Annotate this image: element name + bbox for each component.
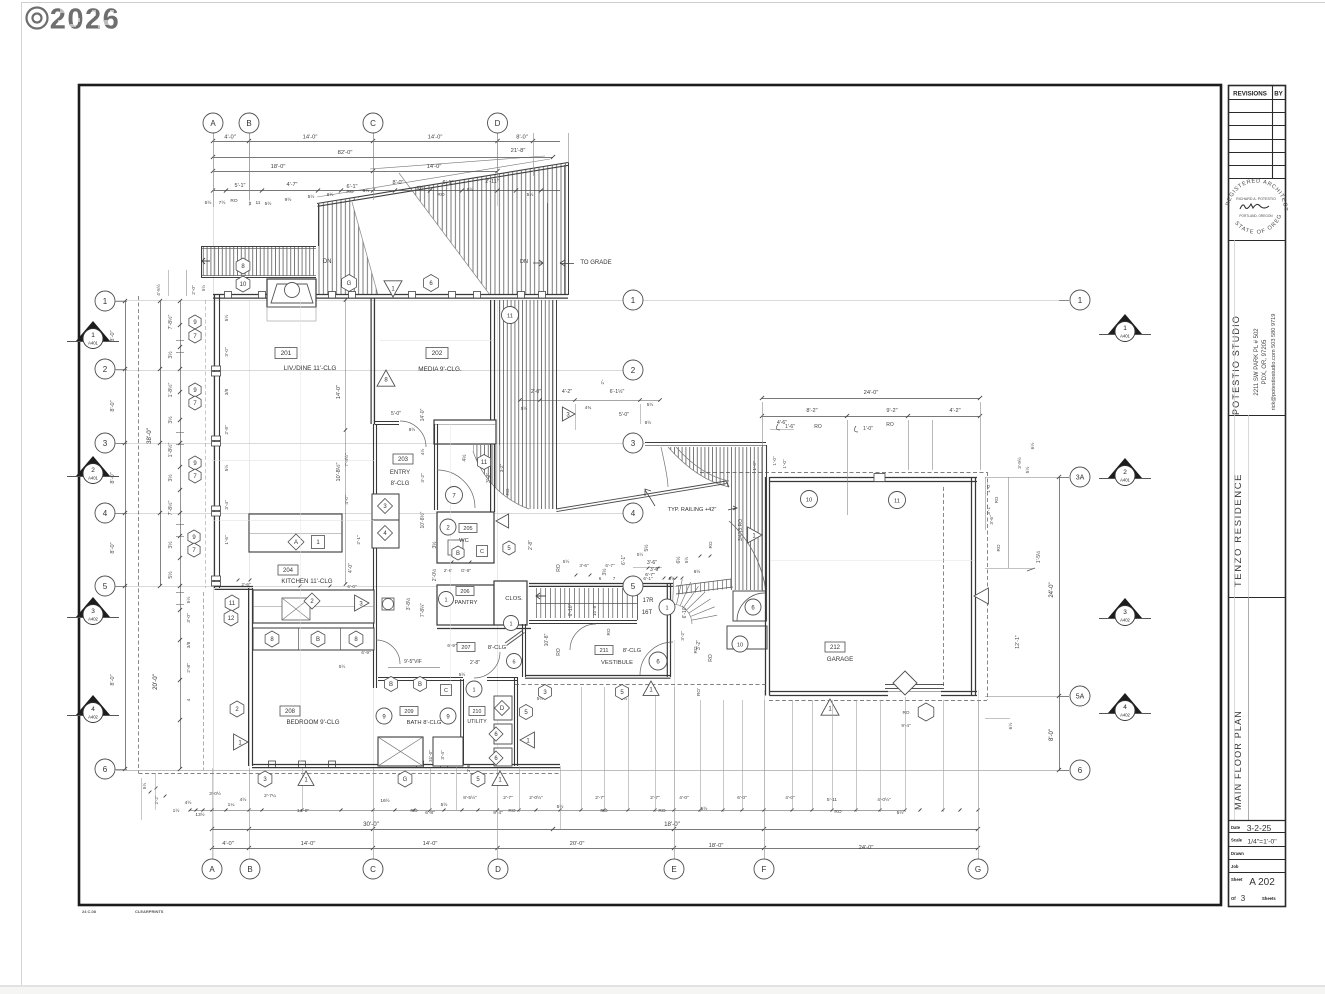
svg-text:3'-6": 3'-6" — [647, 560, 657, 566]
svg-text:7: 7 — [613, 576, 616, 581]
svg-text:2'-0½": 2'-0½" — [529, 794, 543, 801]
svg-text:RO: RO — [600, 808, 607, 814]
svg-text:3½: 3½ — [167, 351, 174, 359]
svg-text:1: 1 — [103, 297, 108, 306]
svg-text:5½: 5½ — [683, 557, 689, 564]
svg-text:12'-1": 12'-1" — [1015, 635, 1021, 649]
svg-text:A401: A401 — [88, 476, 98, 481]
svg-text:8'-CLG: 8'-CLG — [488, 645, 507, 651]
svg-text:2'-8": 2'-8" — [528, 540, 534, 550]
svg-text:RO: RO — [996, 544, 1001, 551]
svg-text:10: 10 — [737, 643, 743, 649]
svg-text:2: 2 — [91, 467, 95, 474]
svg-text:6½: 6½ — [1029, 443, 1036, 450]
svg-text:10'-8": 10'-8" — [592, 604, 597, 616]
svg-text:2: 2 — [103, 365, 108, 374]
svg-text:5: 5 — [631, 582, 636, 591]
svg-text:5½: 5½ — [141, 783, 147, 790]
svg-text:18'-0": 18'-0" — [271, 164, 286, 170]
svg-text:3-2": 3-2" — [499, 463, 504, 472]
svg-text:F: F — [762, 865, 767, 874]
svg-text:212: 212 — [830, 645, 841, 651]
svg-text:8'-5½": 8'-5½" — [463, 794, 477, 801]
svg-text:ENTRY: ENTRY — [390, 470, 410, 476]
svg-text:3: 3 — [1241, 894, 1246, 903]
svg-text:RO: RO — [505, 488, 510, 495]
svg-text:4'-0": 4'-0" — [679, 795, 689, 801]
svg-text:5½: 5½ — [459, 671, 466, 677]
svg-text:16T: 16T — [642, 610, 653, 616]
svg-text:1'-8½": 1'-8½" — [167, 383, 174, 398]
svg-text:3'-4": 3'-4" — [224, 500, 229, 510]
svg-text:2'-7": 2'-7" — [595, 795, 605, 801]
svg-text:RO: RO — [693, 646, 698, 653]
svg-text:5½: 5½ — [669, 575, 676, 581]
svg-text:6: 6 — [512, 660, 515, 666]
svg-text:4: 4 — [1123, 704, 1127, 711]
svg-text:5½: 5½ — [1024, 467, 1031, 474]
svg-text:201: 201 — [281, 350, 292, 357]
svg-text:204: 204 — [283, 568, 294, 574]
svg-text:RO: RO — [606, 628, 611, 635]
svg-text:7'-8½": 7'-8½" — [343, 453, 349, 467]
svg-text:203: 203 — [398, 457, 409, 463]
svg-text:Sheet: Sheet — [1231, 877, 1243, 882]
svg-text:10'-8½": 10'-8½" — [419, 511, 426, 528]
svg-text:DN: DN — [520, 259, 528, 265]
svg-text:rick@potestiostudio.com 503 58: rick@potestiostudio.com 503 580 9719 — [1271, 314, 1277, 411]
svg-text:18'-0": 18'-0" — [664, 821, 680, 828]
svg-text:8'-0": 8'-0" — [110, 472, 116, 483]
svg-text:CLEARPRINTS: CLEARPRINTS — [135, 909, 164, 914]
svg-text:208: 208 — [285, 709, 296, 715]
svg-text:3'-6": 3'-6" — [989, 515, 994, 525]
svg-text:2'-0½: 2'-0½ — [431, 568, 438, 581]
svg-text:3/8: 3/8 — [186, 641, 192, 648]
svg-text:4: 4 — [103, 509, 108, 518]
svg-text:2: 2 — [631, 366, 636, 375]
svg-text:14'-0": 14'-0" — [420, 408, 426, 421]
svg-text:B: B — [316, 637, 320, 643]
svg-text:3/8: 3/8 — [224, 388, 229, 395]
svg-text:TYP. RAILING +42": TYP. RAILING +42" — [668, 507, 717, 513]
svg-text:BATH 8'-CLG: BATH 8'-CLG — [407, 720, 442, 726]
svg-text:RO: RO — [658, 808, 665, 814]
svg-text:20'-0": 20'-0" — [570, 841, 585, 847]
svg-text:5½: 5½ — [897, 809, 904, 816]
svg-text:B: B — [389, 682, 393, 688]
svg-text:G: G — [975, 865, 981, 874]
svg-text:4¾: 4¾ — [585, 405, 592, 410]
svg-text:2'-0": 2'-0" — [531, 389, 541, 395]
svg-text:5: 5 — [103, 582, 108, 591]
svg-text:1: 1 — [665, 606, 668, 612]
svg-text:A402: A402 — [1120, 618, 1130, 623]
svg-text:9'-5"VIF: 9'-5"VIF — [404, 659, 422, 665]
svg-text:B: B — [456, 551, 460, 557]
svg-text:A: A — [210, 119, 216, 128]
svg-text:3-2-25: 3-2-25 — [1247, 823, 1272, 833]
svg-text:211: 211 — [600, 648, 609, 654]
svg-text:8'-0": 8'-0" — [110, 674, 116, 685]
svg-text:10'-8": 10'-8" — [544, 633, 550, 646]
svg-text:3'-6': 3'-6' — [466, 764, 471, 773]
svg-text:5'-0": 5'-0" — [391, 411, 401, 417]
svg-text:10: 10 — [806, 498, 812, 504]
svg-text:RO: RO — [902, 710, 909, 715]
svg-text:5½: 5½ — [557, 803, 564, 810]
svg-text:6'-9": 6'-9" — [447, 643, 457, 648]
svg-text:1: 1 — [444, 598, 447, 604]
svg-text:RO: RO — [994, 496, 999, 503]
svg-text:6: 6 — [103, 765, 108, 774]
svg-text:B: B — [247, 865, 252, 874]
svg-text:1'-0": 1'-0" — [986, 483, 991, 493]
svg-text:5'-1": 5'-1" — [235, 183, 246, 189]
svg-text:3'-4": 3'-4" — [440, 750, 445, 760]
svg-text:5½: 5½ — [167, 571, 174, 579]
svg-text:A: A — [294, 540, 298, 546]
svg-text:D: D — [500, 706, 505, 712]
svg-text:5½: 5½ — [265, 200, 272, 207]
svg-text:3½: 3½ — [167, 416, 174, 424]
svg-text:RO: RO — [346, 189, 353, 195]
svg-text:8½: 8½ — [417, 184, 424, 191]
svg-text:1: 1 — [631, 296, 636, 305]
svg-text:2'-2": 2'-2" — [154, 795, 159, 804]
svg-text:1: 1 — [472, 688, 475, 694]
svg-text:1: 1 — [1123, 325, 1127, 332]
svg-text:2'-6': 2'-6' — [444, 568, 453, 573]
svg-text:4'-0": 4'-0" — [222, 841, 234, 847]
svg-text:RICHARD A. POTESTIO: RICHARD A. POTESTIO — [1236, 197, 1276, 201]
svg-text:4'-7": 4'-7" — [287, 182, 298, 188]
svg-text:3'-6": 3'-6" — [579, 563, 589, 568]
svg-text:205: 205 — [463, 526, 472, 532]
svg-text:4'-0": 4'-0" — [224, 135, 236, 141]
svg-text:1'-0": 1'-0" — [772, 456, 777, 466]
svg-text:7'-8½": 7'-8½" — [167, 501, 174, 516]
svg-text:RO: RO — [437, 192, 444, 198]
svg-text:3/4''(3,RO: 3/4''(3,RO — [738, 519, 744, 541]
svg-text:9½: 9½ — [285, 196, 292, 203]
svg-text:B: B — [246, 119, 251, 128]
svg-text:7'-8¼": 7'-8¼" — [420, 603, 426, 617]
svg-text:6½: 6½ — [694, 568, 701, 574]
svg-text:5½: 5½ — [643, 544, 650, 552]
svg-text:Date: Date — [1231, 825, 1241, 830]
svg-text:6½: 6½ — [675, 556, 682, 564]
svg-text:14'-0": 14'-0" — [423, 841, 438, 847]
svg-text:GARAGE: GARAGE — [827, 656, 853, 663]
svg-text:8½: 8½ — [327, 191, 334, 198]
svg-text:14'-0": 14'-0" — [336, 385, 342, 399]
svg-text:POTESTIO STUDIO: POTESTIO STUDIO — [1231, 315, 1241, 415]
svg-text:A402: A402 — [1120, 713, 1130, 718]
svg-text:14'-0": 14'-0" — [301, 841, 316, 847]
svg-text:5½: 5½ — [527, 191, 534, 198]
svg-text:3: 3 — [249, 201, 252, 207]
svg-text:G'-8": G'-8" — [461, 568, 472, 573]
svg-text:REVISIONS: REVISIONS — [1233, 91, 1267, 98]
svg-text:11: 11 — [256, 200, 261, 206]
svg-text:Sheets: Sheets — [1262, 896, 1276, 901]
svg-text:6'-10": 6'-10" — [568, 603, 574, 616]
svg-text:Scale: Scale — [1231, 838, 1243, 843]
svg-text:4: 4 — [91, 706, 95, 713]
svg-text:11: 11 — [507, 314, 513, 320]
svg-text:Of: Of — [1231, 896, 1236, 901]
svg-text:2'-8": 2'-8" — [224, 425, 229, 435]
svg-text:5'-0": 5'-0" — [619, 412, 629, 418]
svg-text:207: 207 — [461, 645, 470, 651]
svg-text:2'-7¼: 2'-7¼ — [264, 793, 277, 799]
svg-text:D: D — [495, 865, 501, 874]
svg-text:3: 3 — [103, 439, 108, 448]
svg-text:17R: 17R — [642, 598, 654, 604]
svg-text:18'-0": 18'-0" — [709, 843, 724, 849]
svg-text:B: B — [418, 682, 422, 688]
svg-text:8'-0": 8'-0" — [516, 135, 528, 141]
svg-text:11: 11 — [894, 499, 900, 505]
svg-text:BEDROOM 9'-CLG: BEDROOM 9'-CLG — [286, 719, 339, 726]
svg-text:9'-4": 9'-4" — [901, 723, 911, 728]
svg-text:4'-2": 4'-2" — [949, 408, 960, 414]
svg-text:6'-1": 6'-1" — [621, 555, 627, 565]
svg-text:7'-8½": 7'-8½" — [167, 315, 174, 330]
svg-text:4'-0": 4'-0" — [348, 563, 354, 573]
svg-text:11: 11 — [229, 601, 236, 607]
svg-text:5½: 5½ — [223, 315, 229, 322]
svg-text:13½: 13½ — [195, 811, 204, 818]
svg-text:UTILITY: UTILITY — [467, 719, 487, 725]
svg-text:A402: A402 — [88, 715, 98, 720]
svg-text:210: 210 — [473, 709, 482, 715]
svg-text:6'-9": 6'-9" — [361, 650, 371, 655]
svg-text:5½: 5½ — [200, 285, 206, 292]
svg-text:8½: 8½ — [467, 186, 474, 193]
svg-text:Job: Job — [1231, 864, 1239, 869]
svg-text:RO: RO — [410, 808, 417, 814]
svg-text:RO: RO — [556, 564, 562, 572]
svg-text:RO: RO — [556, 648, 562, 656]
svg-text:A401: A401 — [1120, 478, 1130, 483]
svg-text:BY: BY — [1274, 91, 1283, 98]
svg-text:4'-2": 4'-2" — [562, 389, 572, 395]
svg-text:16½: 16½ — [380, 797, 389, 804]
svg-text:C: C — [370, 865, 376, 874]
svg-text:6: 6 — [599, 576, 602, 581]
svg-text:Drawn: Drawn — [1231, 851, 1244, 856]
svg-text:202: 202 — [432, 350, 443, 357]
svg-text:3½: 3½ — [167, 541, 174, 549]
svg-text:4'-0": 4'-0" — [344, 495, 349, 505]
svg-text:8'-0": 8'-0" — [110, 542, 116, 553]
svg-text:A401: A401 — [88, 341, 98, 346]
svg-text:4'-5½: 4'-5½ — [155, 284, 161, 296]
svg-text:2'-11": 2'-11" — [485, 179, 499, 185]
svg-text:6'-1": 6'-1" — [443, 180, 454, 186]
svg-text:3'-2": 3'-2" — [420, 473, 425, 483]
svg-text:38'-0": 38'-0" — [146, 428, 153, 444]
svg-text:3'-9½: 3'-9½ — [1016, 457, 1022, 469]
svg-text:LIV./DINE 11'-CLG: LIV./DINE 11'-CLG — [284, 365, 337, 372]
svg-text:1: 1 — [91, 332, 95, 339]
svg-text:5½: 5½ — [308, 193, 315, 200]
svg-text:C: C — [370, 119, 376, 128]
svg-text:6: 6 — [1078, 766, 1083, 775]
svg-text:2'-8": 2'-8" — [186, 663, 192, 673]
svg-text:5½: 5½ — [205, 199, 212, 206]
svg-text:8'-0": 8'-0" — [1049, 729, 1055, 741]
svg-text:7½: 7½ — [219, 199, 226, 206]
svg-text:1/4"=1'-0": 1/4"=1'-0" — [1247, 839, 1277, 846]
svg-text:C: C — [444, 688, 448, 694]
svg-text:5A: 5A — [1076, 694, 1085, 701]
svg-text:6'-10": 6'-10" — [682, 605, 688, 618]
svg-text:4½: 4½ — [185, 799, 192, 806]
svg-text:24'-0": 24'-0" — [1049, 582, 1055, 597]
svg-text:PANTRY: PANTRY — [455, 600, 478, 606]
svg-text:3'-0": 3'-0" — [224, 347, 229, 357]
svg-text:5½: 5½ — [223, 465, 229, 472]
svg-text:A: A — [209, 865, 215, 874]
svg-text:RO: RO — [814, 424, 822, 430]
svg-text:TO GRADE: TO GRADE — [580, 260, 611, 266]
svg-text:PDX, OR, 97205: PDX, OR, 97205 — [1262, 339, 1268, 384]
svg-text:24'-0": 24'-0" — [859, 845, 874, 851]
svg-text:8'-CLG: 8'-CLG — [623, 648, 642, 654]
svg-text:8'-2": 8'-2" — [806, 408, 817, 414]
svg-text:3'-2": 3'-2" — [486, 473, 492, 483]
svg-text:PORTLAND, OREGON: PORTLAND, OREGON — [1239, 214, 1273, 218]
svg-text:2'-7": 2'-7" — [503, 795, 513, 801]
svg-text:6'-0": 6'-0" — [347, 584, 357, 589]
svg-text:8'-0": 8'-0" — [110, 400, 116, 411]
svg-text:82'-0": 82'-0" — [338, 150, 353, 156]
svg-text:A 202: A 202 — [1249, 877, 1275, 888]
svg-text:RO': RO' — [696, 688, 701, 696]
svg-text:8½: 8½ — [645, 419, 652, 425]
svg-text:9'-2": 9'-2" — [886, 408, 897, 414]
svg-text:A401: A401 — [1120, 334, 1130, 339]
svg-text:1'-8½": 1'-8½" — [167, 443, 174, 458]
svg-text:A402: A402 — [88, 617, 98, 622]
svg-text:VESTIBULE: VESTIBULE — [601, 660, 633, 666]
svg-text:1'-5½: 1'-5½ — [1035, 550, 1042, 563]
svg-text:8½: 8½ — [409, 426, 416, 432]
svg-text:31'-0": 31'-0" — [428, 750, 433, 762]
svg-text:3'-1": 3'-1" — [986, 505, 992, 515]
svg-text:12: 12 — [228, 616, 235, 622]
svg-text:209: 209 — [404, 709, 413, 715]
svg-text:6'-1½": 6'-1½" — [610, 388, 625, 395]
svg-text:1'-0": 1'-0" — [863, 426, 873, 432]
svg-text:KITCHEN 11'-CLG: KITCHEN 11'-CLG — [281, 578, 332, 585]
svg-text:5'-11: 5'-11 — [827, 797, 837, 803]
svg-text:24'-0": 24'-0" — [864, 390, 879, 396]
svg-text:20'-0": 20'-0" — [152, 674, 159, 690]
svg-text:5½: 5½ — [339, 663, 346, 669]
svg-text:5½: 5½ — [441, 801, 448, 808]
svg-text:2'-7": 2'-7" — [650, 795, 660, 801]
svg-text:3½: 3½ — [601, 568, 608, 576]
svg-text:6'-1": 6'-1" — [643, 576, 653, 581]
svg-text:1: 1 — [509, 622, 512, 628]
svg-text:1'-0": 1'-0" — [782, 459, 787, 469]
svg-text:G: G — [403, 777, 408, 783]
svg-text:WC: WC — [459, 538, 469, 544]
svg-text:14'-0": 14'-0" — [428, 135, 443, 141]
svg-text:4'-0½": 4'-0½" — [877, 796, 891, 803]
svg-text:CLOS.: CLOS. — [505, 596, 523, 602]
svg-text:5½: 5½ — [637, 551, 644, 557]
svg-text:24 C.08: 24 C.08 — [82, 909, 97, 914]
svg-text:3: 3 — [1123, 609, 1127, 616]
svg-text:14'-0": 14'-0" — [303, 135, 318, 141]
svg-text:2'-6": 2'-6" — [241, 582, 251, 587]
svg-text:5½: 5½ — [563, 558, 570, 564]
svg-text:6'-0": 6'-0" — [737, 795, 747, 801]
svg-text:RO: RO — [230, 198, 237, 204]
svg-text:8'-0": 8'-0" — [393, 180, 404, 186]
svg-text:5½: 5½ — [647, 401, 654, 407]
svg-text:C: C — [480, 549, 484, 555]
svg-text:1½: 1½ — [173, 807, 180, 814]
svg-text:8'-CLG: 8'-CLG — [391, 481, 410, 487]
svg-text:6'-8": 6'-8" — [425, 810, 435, 816]
svg-text:3'-0": 3'-0" — [186, 613, 192, 623]
svg-text:5½: 5½ — [521, 405, 528, 411]
svg-text:2'-0": 2'-0" — [191, 285, 197, 295]
svg-text:2'-: 2'- — [600, 379, 605, 384]
svg-text:4½: 4½ — [461, 454, 468, 462]
svg-text:10'-8½": 10'-8½" — [335, 463, 342, 482]
svg-text:4: 4 — [186, 698, 192, 701]
svg-text:RO: RO — [708, 541, 713, 548]
svg-text:8½: 8½ — [363, 187, 370, 194]
svg-text:9'-4": 9'-4" — [493, 810, 503, 816]
svg-text:3'-8½: 3'-8½ — [405, 597, 412, 610]
svg-text:4½: 4½ — [240, 796, 247, 803]
svg-text:3'-0½: 3'-0½ — [209, 790, 221, 797]
svg-text:10: 10 — [240, 282, 247, 288]
svg-text:2'-1": 2'-1" — [356, 535, 361, 545]
svg-text:1: 1 — [1078, 296, 1083, 305]
svg-text:5½: 5½ — [185, 597, 192, 604]
svg-text:E: E — [671, 865, 676, 874]
svg-text:3'-2": 3'-2" — [680, 631, 685, 641]
svg-text:3: 3 — [631, 439, 636, 448]
svg-text:RO: RO — [886, 422, 894, 428]
svg-text:3½: 3½ — [431, 541, 438, 549]
svg-text:3: 3 — [91, 608, 95, 615]
svg-text:RO: RO — [708, 654, 714, 662]
svg-text:2'-8": 2'-8" — [470, 660, 480, 666]
svg-text:G: G — [347, 281, 352, 287]
svg-text:5½: 5½ — [701, 805, 708, 812]
svg-text:8'-0": 8'-0" — [110, 330, 116, 341]
svg-text:6½: 6½ — [1007, 723, 1014, 730]
svg-text:RO: RO — [508, 808, 515, 814]
svg-text:11: 11 — [481, 460, 488, 466]
svg-text:RO: RO — [834, 809, 841, 815]
svg-text:4'-0": 4'-0" — [785, 795, 795, 801]
svg-text:206: 206 — [460, 589, 469, 595]
svg-text:2: 2 — [1123, 469, 1127, 476]
svg-text:21'-8": 21'-8" — [511, 148, 526, 154]
svg-text:1'-6": 1'-6" — [224, 535, 229, 545]
